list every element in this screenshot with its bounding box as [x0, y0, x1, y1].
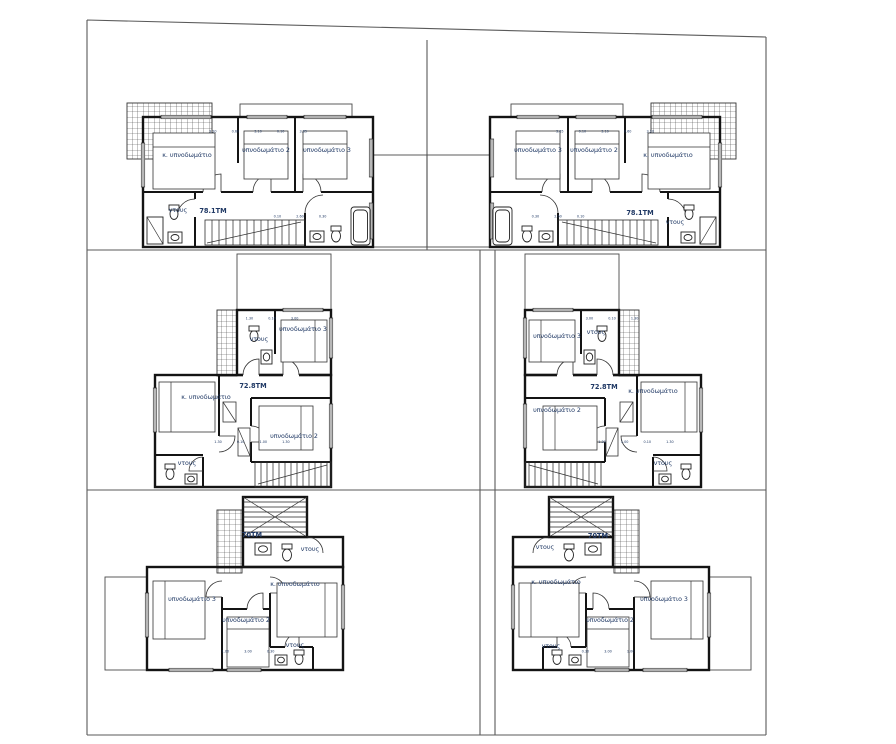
- room-label-master: κ. υπνοδωμάτιο: [628, 387, 678, 395]
- room-label-shower: ντους: [169, 207, 188, 214]
- room-label-bedroom2: υπνοδωμάτιο 2: [270, 432, 318, 440]
- area-label: 70TM: [242, 531, 262, 539]
- room-label-shower: ντους: [587, 329, 606, 336]
- room-label-shower: ντους: [250, 336, 269, 343]
- room-label-bedroom2: υπνοδωμάτιο 2: [222, 616, 270, 624]
- terrace-outline: [427, 155, 490, 247]
- site-plan-drawing: κ. υπνοδωμάτιο υπνοδωμάτιο 2 υπνοδωμάτιο…: [0, 0, 896, 744]
- terrace-outline: [237, 254, 331, 310]
- room-label-shower: ντους: [654, 460, 673, 467]
- room-label-shower: ντους: [178, 460, 197, 467]
- area-label: 78.1TM: [199, 207, 226, 215]
- dimension-text: 0.10 2.60 0.30: [274, 215, 327, 219]
- terrace-outline: [525, 254, 619, 310]
- dimension-text: 3.65 0.10 3.10 0.60 3.20: [556, 130, 654, 134]
- room-label-bedroom3: υπνοδωμάτιο 3: [279, 325, 327, 333]
- room-label-shower: ντους: [666, 219, 685, 226]
- area-label: 72.8TM: [239, 382, 266, 390]
- unit-top-right-plan: [490, 103, 736, 247]
- room-label-bedroom2: υπνοδωμάτιο 2: [533, 406, 581, 414]
- room-label-bedroom2: υπνοδωμάτιο 2: [242, 146, 290, 154]
- dimension-text: 1.30 0.10 3.00: [246, 317, 299, 321]
- room-label-bedroom3: υπνοδωμάτιο 3: [640, 595, 688, 603]
- room-label-master: κ. υπνοδωμάτιο: [643, 151, 693, 159]
- room-label-bedroom3: υπνοδωμάτιο 3: [514, 146, 562, 154]
- dimension-text: 3.00 0.10 1.30: [586, 317, 639, 321]
- terrace-outline: [373, 155, 427, 247]
- dimension-text: 1.30 1.00 0.10 1.30: [598, 440, 673, 444]
- room-label-master: κ. υπνοδωμάτιο: [531, 578, 581, 586]
- room-label-master: κ. υπνοδωμάτιο: [181, 393, 231, 401]
- dimension-text: 3.20 0.60 3.10 0.10 3.65: [209, 130, 307, 134]
- area-label: 72.8TM: [590, 383, 617, 391]
- room-label-bedroom2: υπνοδωμάτιο 2: [586, 616, 634, 624]
- room-label-bedroom3: υπνοδωμάτιο 3: [533, 332, 581, 340]
- room-label-shower: ντους: [286, 642, 305, 649]
- room-label-master: κ. υπνοδωμάτιο: [270, 580, 320, 588]
- room-label-shower: ντους: [542, 643, 561, 650]
- dimension-text: 1.30 0.10 1.00 1.30: [214, 440, 289, 444]
- room-label-shower: ντους: [301, 546, 320, 553]
- dimension-text: 0.30 3.00 1.00: [582, 650, 635, 654]
- room-label-bedroom2: υπνοδωμάτιο 2: [570, 146, 618, 154]
- dimension-text: 1.00 3.00 0.30: [222, 650, 275, 654]
- room-label-bedroom3: υπνοδωμάτιο 3: [303, 146, 351, 154]
- floor-plan-sheet: κ. υπνοδωμάτιο υπνοδωμάτιο 2 υπνοδωμάτιο…: [0, 0, 896, 744]
- area-label: 78.1TM: [626, 209, 653, 217]
- room-label-shower: ντους: [536, 544, 555, 551]
- room-label-master: κ. υπνοδωμάτιο: [162, 151, 212, 159]
- area-label: 70TM: [588, 532, 608, 540]
- dimension-text: 0.30 2.60 0.10: [532, 215, 585, 219]
- unit-top-left-plan: [127, 103, 373, 247]
- room-label-bedroom3: υπνοδωμάτιο 3: [168, 595, 216, 603]
